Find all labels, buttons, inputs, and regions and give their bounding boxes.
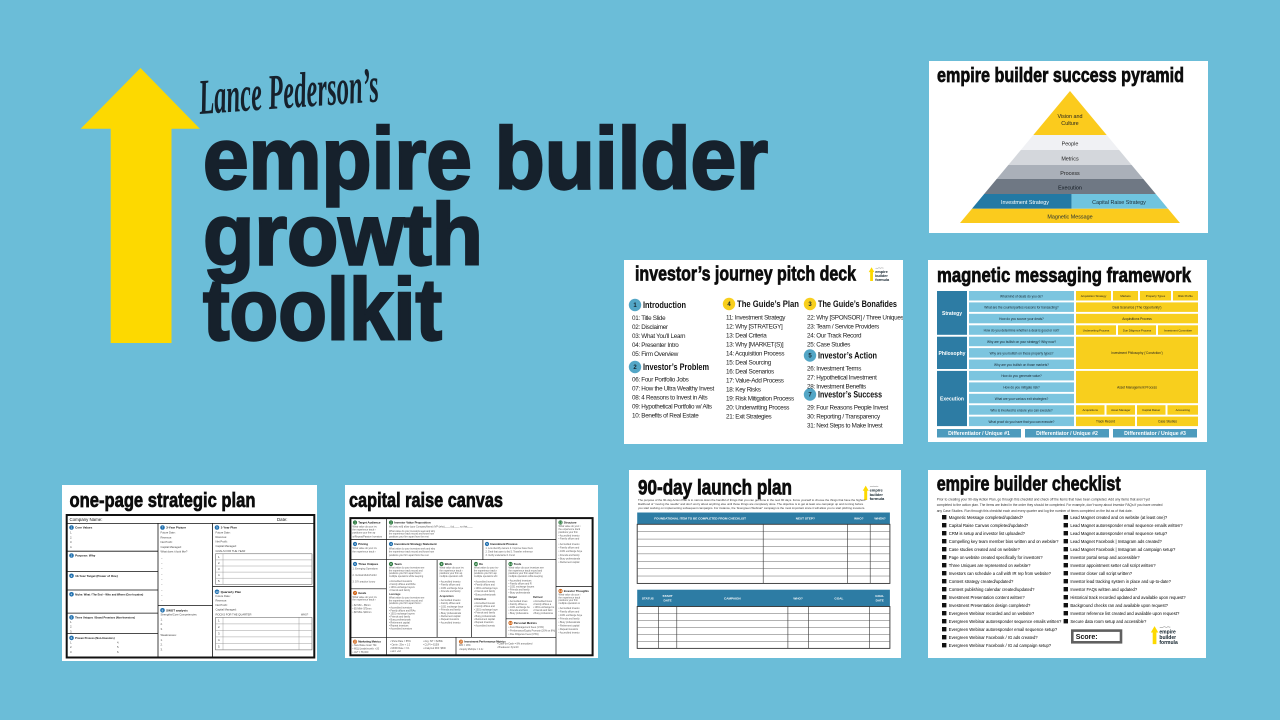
svg-text:08: 4 Reasons to Invest in Alt: 08: 4 Reasons to Invest in Alts [632, 395, 708, 402]
svg-text:Revenue:: Revenue: [216, 535, 228, 539]
svg-text:5.: 5. [218, 645, 220, 649]
svg-text:Differentiator / Unique #1: Differentiator / Unique #1 [948, 431, 1010, 437]
svg-text:• Busy professionals: • Busy professionals [559, 557, 581, 560]
svg-text:Asset Manager: Asset Manager [1111, 408, 1130, 412]
svg-text:multiple operators whi: multiple operators whi [474, 575, 498, 578]
svg-text:• Equity Multiple = 2.2x: • Equity Multiple = 2.2x [459, 648, 484, 651]
svg-text:• Family offices and: • Family offices and [559, 547, 580, 550]
svg-text:07: How the Ultra Wealthy Inve: 07: How the Ultra Wealthy Invest [632, 386, 715, 393]
svg-text:investor’s journey pitch deck: investor’s journey pitch deck [635, 264, 857, 286]
svg-text:Introduction: Introduction [643, 300, 686, 310]
svg-text:Future Date:: Future Date: [161, 531, 176, 535]
svg-text:DATE: DATE [876, 598, 884, 602]
svg-text:Background checks ran and avai: Background checks ran and available upon… [1070, 603, 1168, 608]
svg-text:–: – [161, 599, 163, 602]
svg-text:30: Reporting / Transparency: 30: Reporting / Transparency [807, 414, 881, 421]
svg-text:5.: 5. [218, 579, 220, 583]
svg-text:DATE: DATE [663, 598, 671, 602]
svg-text:Compelling key team member bio: Compelling key team member bios written … [949, 539, 1059, 544]
svg-text:Evergreen Webinar Facebook / I: Evergreen Webinar Facebook / IG ads crea… [949, 635, 1039, 640]
svg-text:How do you generate value?: How do you generate value? [1001, 374, 1042, 378]
svg-text:Investor appointment setter ca: Investor appointment setter call script … [1070, 563, 1156, 568]
svg-text:How do you source your deals?: How do you source your deals? [999, 317, 1044, 321]
svg-text:Capital Managed:: Capital Managed: [216, 608, 237, 612]
svg-text:Lead Magnet autoresponder emai: Lead Magnet autoresponder email sequence… [1070, 531, 1168, 536]
svg-text:20: Underwriting Process: 20: Underwriting Process [726, 405, 789, 412]
svg-text:Three Uniques: Three Uniques [358, 562, 378, 566]
svg-text:Vision and: Vision and [1057, 114, 1082, 120]
svg-text:you start working on implement: you start working on implementing subseq… [638, 506, 865, 510]
svg-text:• Analyzed ROI: $500: • Analyzed ROI: $500 [423, 647, 446, 650]
svg-text:• Accredited investo: • Accredited investo [559, 543, 581, 546]
svg-text:Investment Strategy Statement: Investment Strategy Statement [394, 542, 436, 546]
svg-text:IRR = 18%: IRR = 18% [459, 644, 472, 647]
svg-text:• Friends and family: • Friends and family [559, 554, 581, 557]
svg-text:GOAL: GOAL [834, 597, 843, 601]
svg-text:3. Verify underwrite 6.: 3. Verify underwrite 6. Fund [486, 554, 516, 557]
svg-text:–: – [161, 589, 163, 592]
svg-text:Net Profit:: Net Profit: [216, 540, 228, 544]
svg-text:Deal Scenarios (‘The Opportuni: Deal Scenarios (‘The Opportunity’) [1113, 306, 1162, 310]
svg-text:Underwriting Process: Underwriting Process [1083, 328, 1110, 332]
svg-text:22: Why [SPONSOR] / Three Uniq: 22: Why [SPONSOR] / Three Uniques [807, 315, 903, 322]
svg-text:Investor closer call script wr: Investor closer call script written? [1070, 571, 1132, 576]
svg-text:Evergreen Webinar autoresponde: Evergreen Webinar autoresponder sequence… [949, 619, 1062, 624]
svg-text:Goals: Goals [358, 591, 366, 595]
svg-text:WHO?: WHO? [301, 613, 309, 616]
svg-text:Acquisitions Process: Acquisitions Process [1122, 317, 1152, 321]
svg-text:2.: 2. [70, 625, 72, 629]
svg-text:STATUS: STATUS [642, 597, 654, 601]
svg-text:13: 13 [559, 521, 563, 525]
svg-text:03: What You’ll Learn: 03: What You’ll Learn [632, 333, 686, 340]
svg-text:Track Record: Track Record [1096, 420, 1115, 424]
svg-text:13: Why [MARKET(S)]: 13: Why [MARKET(S)] [726, 342, 784, 349]
svg-text:1-Year Plan: 1-Year Plan [221, 526, 237, 530]
svg-text:23: Team / Service Providers: 23: Team / Service Providers [807, 324, 879, 331]
svg-text:Date:: Date: [277, 517, 288, 522]
svg-text:4.: 4. [117, 640, 119, 644]
svg-text:• Accredited investo: • Accredited investo [474, 624, 496, 627]
svg-text:CAMPAIGN: CAMPAIGN [724, 597, 741, 601]
svg-text:Score:: Score: [1076, 634, 1098, 641]
svg-text:The Guide’s Bonafides: The Guide’s Bonafides [818, 299, 897, 309]
svg-text:Weaknesses:: Weaknesses: [161, 633, 177, 637]
svg-text:24: Our Track Record: 24: Our Track Record [807, 333, 862, 340]
svg-text:Capital Managed:: Capital Managed: [216, 544, 237, 548]
svg-text:Investment Philosophy (‘Convic: Investment Philosophy (‘Conviction’) [1111, 351, 1162, 355]
svg-text:Lead Magnet created and on web: Lead Magnet created and on website (at l… [1070, 515, 1168, 520]
svg-text:2.: 2. [70, 645, 72, 649]
svg-text:CRM is setup and investor list: CRM is setup and investor list uploaded? [949, 531, 1026, 536]
svg-text:Risk Profile: Risk Profile [1178, 294, 1193, 298]
svg-text:Three Uniques / Brand Promises: Three Uniques / Brand Promises (Non-Inve… [75, 616, 135, 620]
svg-text:Investor’s Problem: Investor’s Problem [643, 362, 709, 372]
svg-text:Revenue:: Revenue: [161, 535, 173, 539]
svg-text:Investment Presentation conten: Investment Presentation content written? [949, 595, 1026, 600]
svg-text:1.: 1. [218, 555, 220, 559]
svg-text:Asset Management Process: Asset Management Process [1117, 385, 1157, 389]
svg-text:• Family offices and: • Family offices and [559, 538, 580, 541]
svg-text:positions your firm: positions your firm [559, 531, 578, 534]
svg-text:Evergreen Webinar recorded and: Evergreen Webinar recorded and on websit… [949, 611, 1035, 616]
svg-text:• amt: +12: • amt: +12 [390, 650, 402, 653]
svg-text:14: 14 [559, 589, 563, 593]
svg-text:Investor FAQs written and upda: Investor FAQs written and updated? [1070, 587, 1137, 592]
svg-text:Accounting: Accounting [1176, 408, 1191, 412]
svg-text:Capital Raise Strategy: Capital Raise Strategy [1092, 200, 1146, 206]
svg-text:completed to the action plan.: completed to the action plan. The items … [937, 503, 1163, 507]
svg-text:Markets: Markets [1120, 294, 1131, 298]
svg-text:1.: 1. [70, 640, 72, 644]
svg-text:• Due Diligence Fees (0.5%): • Due Diligence Fees (0.5%) [509, 633, 539, 636]
svg-text:START: START [663, 594, 673, 598]
svg-text:Differentiator / Unique #3: Differentiator / Unique #3 [1124, 431, 1186, 437]
svg-text:–: – [161, 562, 163, 565]
svg-text:10: 10 [215, 590, 219, 594]
svg-text:empire builder success pyramid: empire builder success pyramid [937, 65, 1184, 87]
svg-text:Lead Magnet Facebook | Instagr: Lead Magnet Facebook | Instagram ad camp… [1070, 547, 1176, 552]
svg-text:Historical track recorded upda: Historical track recorded updated and av… [1070, 595, 1186, 600]
svg-text:Proven Process (Non-Investors): Proven Process (Non-Investors) [75, 636, 115, 640]
svg-text:3.: 3. [161, 627, 163, 631]
svg-text:4.: 4. [70, 545, 72, 549]
svg-text:capital raise canvas: capital raise canvas [349, 489, 503, 512]
svg-text:What kind of deals do you do?: What kind of deals do you do? [1000, 294, 1043, 298]
svg-text:Investor Thoughts: Investor Thoughts [564, 589, 590, 593]
svg-text:Investment Committee: Investment Committee [1164, 328, 1192, 332]
svg-text:27: Hypothetical Investment: 27: Hypothetical Investment [807, 375, 877, 382]
svg-text:positions your firm ap: positions your firm ap [353, 531, 376, 534]
svg-text:31: Next Steps to Make Invest: 31: Next Steps to Make Invest [807, 423, 883, 430]
svg-text:• Friends and family: • Friends and family [389, 589, 411, 592]
svg-text:3.: 3. [70, 540, 72, 544]
svg-text:Execution: Execution [1058, 185, 1082, 191]
svg-text:formula: formula [1159, 640, 1178, 646]
svg-text:25: Case Studies: 25: Case Studies [807, 342, 850, 349]
svg-text:GOAL: GOAL [875, 594, 884, 598]
svg-text:11: Investment Strategy: 11: Investment Strategy [726, 315, 786, 322]
svg-text:Lead Magnet Facebook | Instagr: Lead Magnet Facebook | Instagram ads cre… [1070, 539, 1162, 544]
svg-text:09: Hypothetical Portfolio w/: 09: Hypothetical Portfolio w/ Alts [632, 404, 712, 411]
svg-text:2.: 2. [218, 625, 220, 629]
svg-text:3-Year Picture: 3-Year Picture [166, 526, 186, 530]
svg-text:Pricing: Pricing [358, 542, 368, 546]
svg-text:26: Investment Terms: 26: Investment Terms [807, 366, 861, 373]
svg-text:Who is involved to ensure you: Who is involved to ensure you can execut… [990, 409, 1053, 413]
svg-text:Evergreen Webinar Facebook / I: Evergreen Webinar Facebook / IG ad campa… [949, 643, 1052, 648]
svg-text:Structure: Structure [564, 521, 577, 525]
svg-text:Attraction: Attraction [474, 597, 487, 601]
svg-text:6.: 6. [117, 650, 119, 654]
svg-text:3.: 3. [218, 632, 220, 636]
svg-text:Execution: Execution [940, 397, 964, 403]
svg-text:Core Values: Core Values [75, 526, 93, 530]
svg-text:Differentiator / Unique #2: Differentiator / Unique #2 [1036, 431, 1098, 437]
svg-text:Company Name:: Company Name: [70, 517, 103, 522]
svg-text:Three Uniques are represented: Three Uniques are represented on website… [949, 563, 1031, 568]
svg-text:one-page strategic plan: one-page strategic plan [70, 489, 256, 512]
svg-text:2.: 2. [70, 535, 72, 539]
svg-text:Purpose: Why: Purpose: Why [75, 554, 95, 558]
svg-text:3. DIY practice luxury: 3. DIY practice luxury [353, 581, 376, 584]
svg-text:4.: 4. [218, 573, 220, 577]
svg-text:Capital Raise Canvas completed: Capital Raise Canvas completed/updated? [949, 523, 1029, 528]
svg-text:–: – [161, 584, 163, 587]
svg-text:Evergreen Webinar autoresponde: Evergreen Webinar autoresponder email se… [949, 627, 1058, 632]
svg-text:3.: 3. [161, 647, 163, 651]
svg-text:02: Disclaimer: 02: Disclaimer [632, 324, 668, 331]
svg-text:Process: Process [1060, 171, 1080, 177]
svg-text:multiple operators while keepi: multiple operators while keeping [509, 575, 544, 578]
svg-text:• 1031 exchange buye: • 1031 exchange buye [559, 550, 583, 553]
svg-text:Refined: Refined [533, 595, 543, 599]
svg-text:• Accredited investors: • Accredited investors [389, 628, 413, 631]
svg-text:Case Studies: Case Studies [1158, 420, 1177, 424]
svg-text:the experience track r: the experience track r [353, 550, 376, 553]
svg-text:• Busy professiona: • Busy professiona [509, 612, 530, 615]
svg-text:Investor’s Success: Investor’s Success [818, 390, 882, 400]
svg-text:19: Risk Mitigation Process: 19: Risk Mitigation Process [726, 396, 794, 403]
svg-text:Investor Value Proposition: Investor Value Proposition [394, 521, 431, 525]
svg-text:The Guide’s Plan: The Guide’s Plan [737, 299, 799, 309]
svg-text:Output: Output [509, 595, 518, 599]
svg-text:• Friends and family: • Friends and family [440, 590, 462, 593]
svg-text:Target Audience: Target Audience [358, 521, 381, 525]
svg-text:1. Emerging Operations: 1. Emerging Operations [353, 568, 379, 571]
svg-text:positions your firm apart from: positions your firm apart from t [389, 602, 422, 605]
svg-text:Quarterly Plan: Quarterly Plan [221, 590, 242, 594]
svg-text:multiple operators whi: multiple operators whi [440, 575, 464, 578]
svg-text:3.: 3. [218, 567, 220, 571]
svg-text:empire builder checklist: empire builder checklist [937, 474, 1121, 496]
svg-text:Prior to creating your 90-day: Prior to creating your 90-day Action Pla… [937, 497, 1150, 501]
svg-text:Case studies created and on we: Case studies created and on website? [949, 547, 1021, 552]
svg-text:Content publishing calendar cr: Content publishing calendar created/upda… [949, 587, 1035, 592]
svg-text:3.: 3. [70, 629, 72, 633]
svg-text:13: Deal Criteria: 13: Deal Criteria [726, 333, 767, 340]
svg-text:the experience track r: the experience track r [353, 599, 376, 602]
svg-text:How do you mitigate risk?: How do you mitigate risk? [1003, 386, 1040, 390]
svg-text:any Case Studies. Run through: any Case Studies. Run through this check… [937, 509, 1133, 513]
svg-text:Lead Magnet autoresponder emai: Lead Magnet autoresponder email sequence… [1070, 523, 1183, 528]
svg-text:GOALS FOR THE YEAR: GOALS FOR THE YEAR [216, 549, 246, 553]
svg-text:Leverage: Leverage [389, 592, 401, 596]
svg-text:11: 11 [509, 562, 512, 566]
svg-text:21: Exit Strategies: 21: Exit Strategies [726, 414, 772, 421]
svg-text:Capital Managed:: Capital Managed: [161, 545, 182, 549]
svg-text:29: Four Reasons People Invest: 29: Four Reasons People Invest [807, 405, 889, 412]
svg-text:–: – [161, 578, 163, 581]
svg-text:Secure data room setup and acc: Secure data room setup and accessible? [1070, 619, 1147, 624]
svg-text:• Accredited investo: • Accredited investo [440, 621, 462, 624]
svg-text:Strengths/Core Competencies:: Strengths/Core Competencies: [161, 613, 198, 617]
svg-text:multiple operators while keepi: multiple operators while keeping [389, 575, 424, 578]
svg-text:• Vel* = 55,000: • Vel* = 55,000 [353, 651, 369, 654]
svg-text:1.: 1. [70, 531, 72, 535]
svg-text:What does it look like?: What does it look like? [161, 550, 188, 554]
svg-text:What are the counterparties re: What are the counterparties reasons for … [984, 306, 1059, 310]
svg-text:Why are you bullish on those p: Why are you bullish on those property ty… [990, 351, 1054, 355]
svg-text:Magnetic Message: Magnetic Message [1047, 215, 1092, 221]
svg-text:multiple operators w: multiple operators w [559, 602, 581, 605]
svg-text:4.: 4. [218, 638, 220, 642]
svg-text:Work: Work [445, 562, 453, 566]
svg-text:Why are you bullish on your st: Why are you bullish on your strategy? Wh… [987, 340, 1056, 344]
svg-text:01: Title Slide: 01: Title Slide [632, 315, 666, 322]
svg-text:–: – [161, 557, 163, 560]
svg-text:1.: 1. [70, 620, 72, 624]
svg-text:• $8 MM+ $20mm: • $8 MM+ $20mm [353, 611, 372, 614]
svg-text:positions your firm apart from: positions your firm apart from the rest [389, 554, 429, 557]
svg-text:17: Value-Add Process: 17: Value-Add Process [726, 378, 784, 385]
svg-text:3.: 3. [70, 650, 72, 654]
svg-text:14: Acquisition Process: 14: Acquisition Process [726, 351, 784, 358]
svg-text:Acquisition Strategy: Acquisition Strategy [1081, 294, 1107, 298]
svg-text:Net Profit:: Net Profit: [216, 603, 228, 607]
svg-text:Due Diligence Process: Due Diligence Process [1123, 328, 1152, 332]
svg-text:Team: Team [394, 562, 402, 566]
svg-text:Net Profit:: Net Profit: [161, 540, 173, 544]
svg-text:Investor portal setup and acce: Investor portal setup and accessible? [1070, 555, 1140, 560]
svg-text:Niche: What / The End – Who an: Niche: What / The End – Who and Where (G… [75, 593, 143, 597]
svg-text:magnetic messaging framework: magnetic messaging framework [937, 265, 1192, 287]
svg-text:90-day launch plan: 90-day launch plan [638, 476, 792, 499]
svg-text:Revenue:: Revenue: [216, 599, 228, 603]
svg-text:1.: 1. [218, 619, 220, 623]
svg-text:• Busy professiona: • Busy professiona [533, 612, 554, 615]
svg-text:Content strategy created/updat: Content strategy created/updated? [949, 579, 1014, 584]
svg-text:Magnetic Message completed/upd: Magnetic Message completed/updated? [949, 515, 1024, 520]
svg-text:NEXT STEP?: NEXT STEP? [796, 517, 815, 521]
svg-text:2. Vertical Multi-Portfol: 2. Vertical Multi-Portfol [353, 574, 377, 577]
svg-text:10-Year Target (Power of One): 10-Year Target (Power of One) [75, 574, 118, 578]
svg-text:SWOT analysis: SWOT analysis [166, 609, 188, 613]
svg-text:5.: 5. [117, 645, 119, 649]
svg-text:05: Firm Overview: 05: Firm Overview [632, 351, 679, 358]
svg-text:04: Presenter Intro: 04: Presenter Intro [632, 342, 679, 349]
svg-text:We (who will) allow (your Comp: We (who will) allow (your CompanyName) I… [389, 526, 473, 529]
svg-text:Metrics: Metrics [1061, 157, 1079, 163]
svg-text:Acquisitions: Acquisitions [1082, 408, 1098, 412]
svg-text:• Accredited investo: • Accredited investo [559, 632, 581, 635]
svg-text:Culture: Culture [1061, 121, 1078, 127]
svg-text:• Breakeven 3yrs/10: • Breakeven 3yrs/10 [497, 646, 519, 649]
svg-text:–: – [161, 568, 163, 571]
svg-text:toolkit: toolkit [203, 261, 442, 358]
svg-text:WHO?: WHO? [793, 597, 803, 601]
svg-text:• Retirement capital: • Retirement capital [559, 561, 580, 564]
svg-text:Investment Process: Investment Process [490, 542, 518, 546]
svg-text:positions your firm apart from: positions your firm apart from the rest [389, 536, 429, 539]
svg-text:WHEN?: WHEN? [874, 517, 885, 521]
svg-text:How do you determine whether a: How do you determine whether a deal is g… [984, 329, 1060, 333]
svg-text:Tools: Tools [514, 562, 522, 566]
svg-text:Future Date:: Future Date: [216, 594, 231, 598]
svg-text:Investment Presentation design: Investment Presentation design completed… [949, 603, 1031, 608]
svg-text:ROCKS FOR THE QUARTER: ROCKS FOR THE QUARTER [216, 612, 252, 616]
svg-text:1.: 1. [161, 617, 163, 621]
svg-text:Investor reference list create: Investor reference list created and avai… [1070, 611, 1180, 616]
svg-text:18: Key Risks: 18: Key Risks [726, 387, 761, 394]
svg-text:What are your various exit str: What are your various exit strategies? [995, 397, 1049, 401]
svg-text:2.: 2. [218, 561, 220, 565]
svg-text:Investors can schedule a call: Investors can schedule a call with IR re… [949, 571, 1052, 576]
svg-text:2.: 2. [161, 622, 163, 626]
svg-text:10: Benefits of Real Estate: 10: Benefits of Real Estate [632, 413, 699, 420]
svg-text:FOUNDATIONAL ITEM TO BE COMPLE: FOUNDATIONAL ITEM TO BE COMPLETED FROM C… [654, 517, 746, 521]
svg-text:12: 12 [509, 621, 513, 625]
svg-text:–: – [161, 573, 163, 576]
svg-text:Page on website created specif: Page on website created specifically for… [949, 555, 1043, 560]
svg-text:formula: formula [870, 496, 885, 501]
svg-text:Investor’s Action: Investor’s Action [818, 351, 877, 361]
svg-text:2.: 2. [161, 643, 163, 647]
svg-text:• Busy professionals: • Busy professionals [474, 593, 496, 596]
svg-text:06: Four Portfolio Jobs: 06: Four Portfolio Jobs [632, 377, 689, 384]
svg-text:15: Deal Sourcing: 15: Deal Sourcing [726, 360, 772, 367]
svg-text:Property Types: Property Types [1146, 294, 1166, 298]
svg-text:w/Repeat/Passive Investors: w/Repeat/Passive Investors [353, 535, 383, 538]
svg-text:–: – [161, 594, 163, 597]
svg-text:WHO?: WHO? [854, 517, 864, 521]
svg-text:Investor lead tracking system: Investor lead tracking system in place a… [1070, 579, 1171, 584]
svg-text:Philosophy: Philosophy [939, 351, 966, 357]
svg-text:Capital Raiser: Capital Raiser [1142, 408, 1160, 412]
svg-text:12: Why [STRATEGY]: 12: Why [STRATEGY] [726, 324, 783, 331]
svg-text:Why are you bullish on those m: Why are you bullish on those markets? [994, 363, 1049, 367]
svg-text:Investment Strategy: Investment Strategy [1001, 200, 1049, 206]
svg-text:People: People [1062, 142, 1079, 148]
svg-text:16: Deal Scenarios: 16: Deal Scenarios [726, 369, 774, 376]
svg-text:What proof do you have that yo: What proof do you have that you can exec… [989, 420, 1055, 424]
svg-text:Future Date:: Future Date: [216, 531, 231, 535]
svg-text:Do: Do [479, 562, 483, 566]
svg-text:Acquisition: Acquisition [440, 594, 455, 598]
svg-text:Personal Metrics: Personal Metrics [514, 621, 538, 625]
svg-text:1.: 1. [161, 638, 163, 642]
svg-text:formula: formula [875, 278, 890, 282]
svg-text:• Busy professionals: • Busy professionals [509, 592, 531, 595]
svg-text:Strategy: Strategy [942, 311, 962, 317]
svg-text:10: 10 [474, 562, 478, 566]
